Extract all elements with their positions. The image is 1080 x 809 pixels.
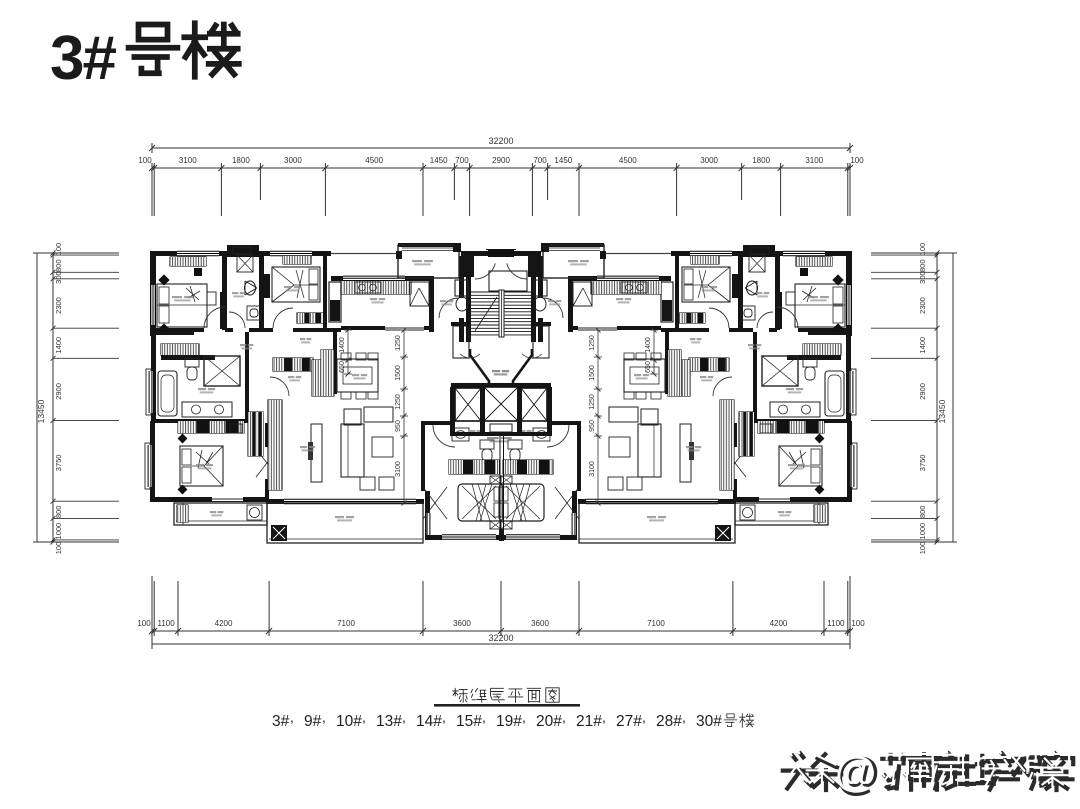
svg-text:2900: 2900 <box>54 383 63 400</box>
svg-text:1450: 1450 <box>554 156 572 165</box>
svg-text:100: 100 <box>54 542 63 555</box>
svg-text:3#: 3# <box>272 713 290 730</box>
svg-text:1250: 1250 <box>589 394 596 410</box>
svg-text:100: 100 <box>850 156 864 165</box>
svg-text:100: 100 <box>54 243 63 256</box>
svg-text:650: 650 <box>645 361 652 373</box>
svg-text:28#: 28# <box>656 713 682 730</box>
svg-text:9#: 9# <box>304 713 322 730</box>
svg-text:100: 100 <box>918 542 927 555</box>
svg-text:1100: 1100 <box>827 619 845 628</box>
svg-text:20#: 20# <box>536 713 562 730</box>
svg-text:14#: 14# <box>416 713 442 730</box>
svg-text:100: 100 <box>137 619 151 628</box>
svg-text:1250: 1250 <box>589 335 596 351</box>
svg-text:1800: 1800 <box>232 156 250 165</box>
svg-text:1250: 1250 <box>395 394 402 410</box>
svg-text:,: , <box>362 709 366 725</box>
svg-text:,: , <box>642 709 646 725</box>
svg-text:27#: 27# <box>616 713 642 730</box>
svg-text:10#: 10# <box>336 713 362 730</box>
svg-text:800: 800 <box>54 506 63 519</box>
svg-text:3#: 3# <box>50 24 116 93</box>
svg-text:800: 800 <box>918 506 927 519</box>
svg-text:3100: 3100 <box>395 461 402 477</box>
svg-text:700: 700 <box>533 156 547 165</box>
svg-text:1250: 1250 <box>395 335 402 351</box>
svg-text:30#: 30# <box>696 713 722 730</box>
svg-text:100: 100 <box>918 243 927 256</box>
svg-text:3100: 3100 <box>589 461 596 477</box>
svg-text:950: 950 <box>589 420 596 432</box>
svg-text:,: , <box>322 709 326 725</box>
svg-text:2300: 2300 <box>918 297 927 314</box>
svg-text:1400: 1400 <box>645 337 652 353</box>
svg-text:3600: 3600 <box>531 619 549 628</box>
svg-text:4200: 4200 <box>770 619 788 628</box>
svg-text:1400: 1400 <box>339 337 346 353</box>
svg-text:1100: 1100 <box>157 619 175 628</box>
svg-text:19#: 19# <box>496 713 522 730</box>
svg-text:3000: 3000 <box>700 156 718 165</box>
svg-text:4500: 4500 <box>619 156 637 165</box>
svg-text:7100: 7100 <box>337 619 355 628</box>
svg-text:3600: 3600 <box>453 619 471 628</box>
svg-text:,: , <box>442 709 446 725</box>
svg-text:,: , <box>482 709 486 725</box>
svg-text:2900: 2900 <box>492 156 510 165</box>
svg-text:15#: 15# <box>456 713 482 730</box>
svg-text:1000: 1000 <box>54 523 63 540</box>
svg-text:,: , <box>290 709 294 725</box>
svg-text:32200: 32200 <box>488 136 513 146</box>
svg-text:1000: 1000 <box>918 523 927 540</box>
svg-text:,: , <box>602 709 606 725</box>
svg-text:@: @ <box>834 749 877 796</box>
svg-text:1450: 1450 <box>430 156 448 165</box>
svg-text:13450: 13450 <box>36 399 46 423</box>
svg-text:650: 650 <box>339 361 346 373</box>
svg-text:,: , <box>402 709 406 725</box>
svg-text:,: , <box>682 709 686 725</box>
svg-text:3100: 3100 <box>805 156 823 165</box>
svg-text:100: 100 <box>138 156 152 165</box>
svg-text:300: 300 <box>54 271 63 284</box>
svg-text:3750: 3750 <box>918 455 927 472</box>
svg-text:1500: 1500 <box>395 365 402 381</box>
svg-text:3750: 3750 <box>54 455 63 472</box>
svg-text:32200: 32200 <box>488 633 513 643</box>
svg-text:4500: 4500 <box>365 156 383 165</box>
svg-text:700: 700 <box>455 156 469 165</box>
svg-text:1500: 1500 <box>589 365 596 381</box>
svg-text:950: 950 <box>395 420 402 432</box>
svg-text:1400: 1400 <box>54 337 63 354</box>
svg-text:13#: 13# <box>376 713 402 730</box>
svg-text:2900: 2900 <box>918 383 927 400</box>
svg-text:3000: 3000 <box>284 156 302 165</box>
svg-text:300: 300 <box>918 271 927 284</box>
svg-text:1400: 1400 <box>918 337 927 354</box>
svg-text:2300: 2300 <box>54 297 63 314</box>
svg-text:800: 800 <box>918 259 927 272</box>
svg-text:800: 800 <box>54 259 63 272</box>
svg-text:4200: 4200 <box>215 619 233 628</box>
svg-text:100: 100 <box>851 619 865 628</box>
svg-text:,: , <box>562 709 566 725</box>
svg-text:7100: 7100 <box>647 619 665 628</box>
svg-text:,: , <box>522 709 526 725</box>
svg-text:3100: 3100 <box>179 156 197 165</box>
svg-text:21#: 21# <box>576 713 602 730</box>
svg-text:1800: 1800 <box>752 156 770 165</box>
